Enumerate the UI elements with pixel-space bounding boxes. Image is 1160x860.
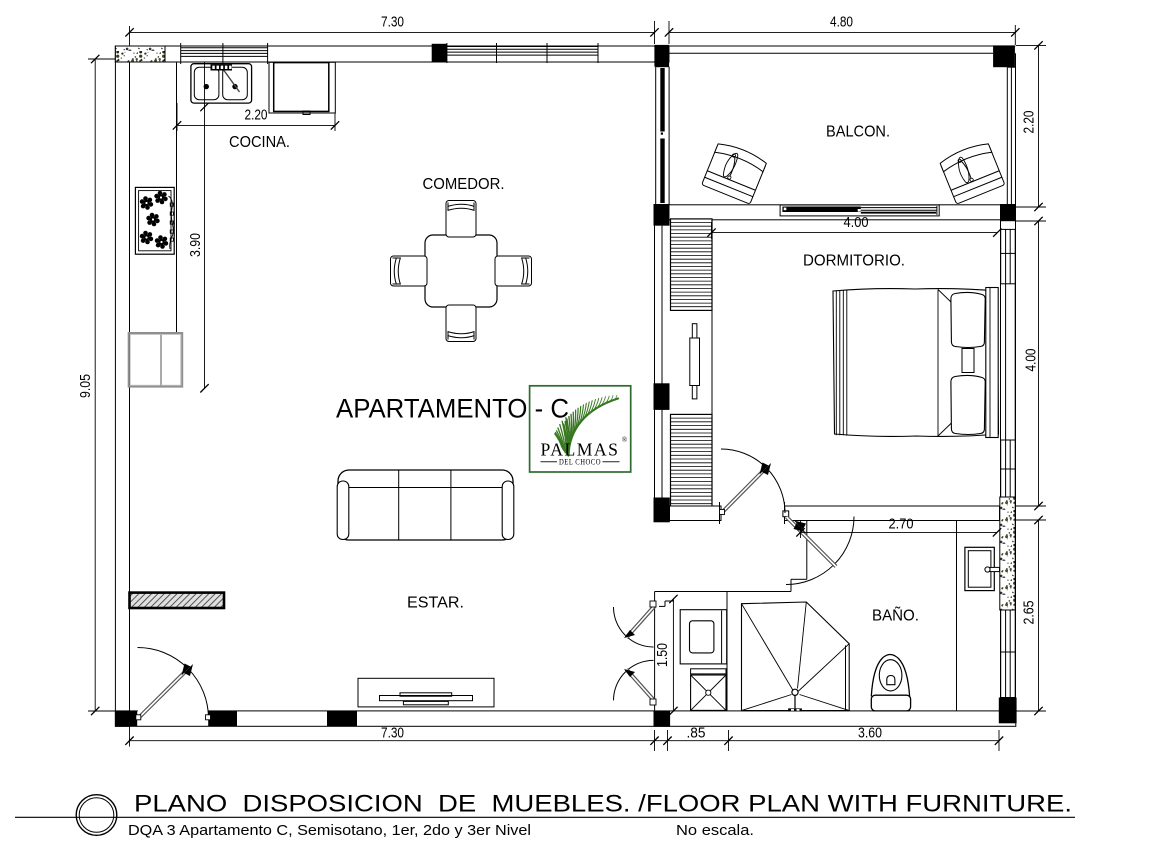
svg-text:7.30: 7.30 (381, 15, 404, 31)
svg-text:2.70: 2.70 (889, 517, 914, 533)
svg-text:2.65: 2.65 (1022, 601, 1038, 625)
svg-text:BAÑO.: BAÑO. (872, 605, 919, 625)
svg-text:4.80: 4.80 (830, 15, 853, 31)
svg-text:BALCON.: BALCON. (826, 124, 890, 141)
svg-text:2.20: 2.20 (1022, 111, 1038, 134)
svg-text:PALMAS: PALMAS (541, 440, 620, 460)
svg-text:COCINA.: COCINA. (229, 134, 290, 151)
svg-text:DQA 3 Apartamento C, Semisotan: DQA 3 Apartamento C, Semisotano, 1er, 2d… (128, 822, 531, 839)
svg-text:DORMITORIO.: DORMITORIO. (803, 253, 905, 270)
svg-text:1.50: 1.50 (655, 643, 671, 667)
svg-text:4.00: 4.00 (1024, 349, 1040, 372)
svg-text:3.90: 3.90 (188, 233, 204, 257)
svg-text:®: ® (622, 436, 628, 444)
svg-text:4.00: 4.00 (844, 215, 869, 231)
svg-text:ESTAR.: ESTAR. (407, 595, 464, 612)
svg-text:COMEDOR.: COMEDOR. (423, 176, 505, 193)
svg-text:9.05: 9.05 (78, 374, 94, 398)
svg-text:No escala.: No escala. (676, 822, 754, 839)
svg-text:.85: .85 (687, 726, 706, 742)
svg-text:7.30: 7.30 (381, 726, 404, 742)
svg-text:2.20: 2.20 (245, 108, 268, 124)
svg-text:3.60: 3.60 (858, 726, 882, 742)
svg-text:APARTAMENTO - C: APARTAMENTO - C (336, 394, 569, 424)
svg-text:PLANO DISPOSICION DE MUEBLE: PLANO DISPOSICION DE MUEBLES. /FLOOR PLA… (134, 791, 1072, 818)
svg-text:DEL CHOCO: DEL CHOCO (559, 458, 601, 467)
